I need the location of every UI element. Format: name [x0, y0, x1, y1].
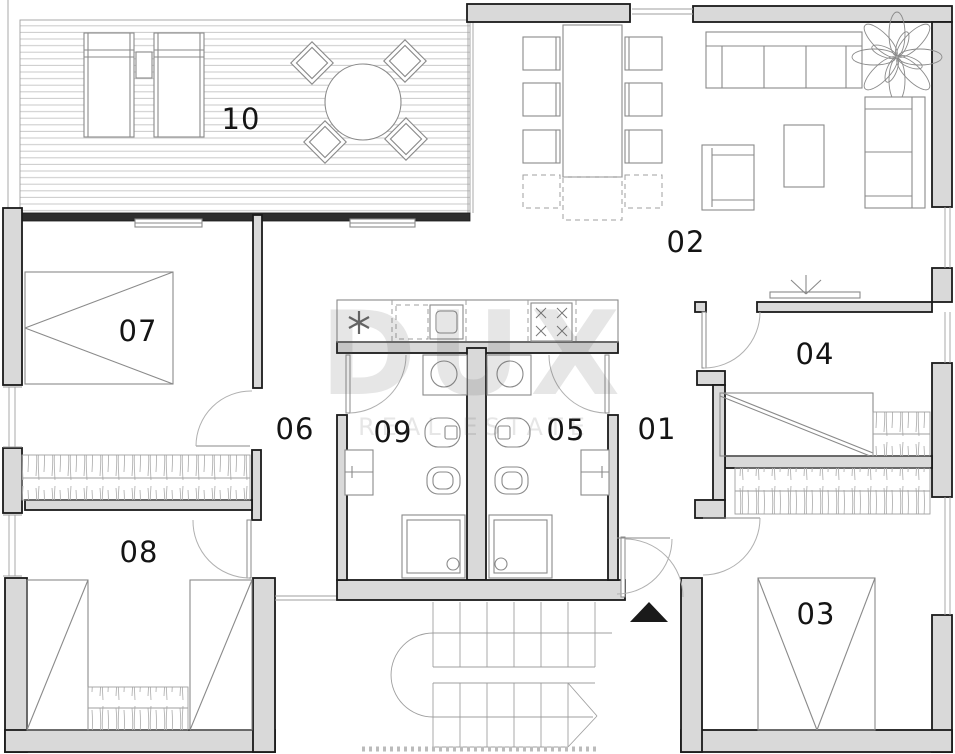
sliding-door-threshold [135, 219, 202, 227]
door [703, 518, 760, 575]
bedroom-04 [702, 312, 930, 456]
stair-direction-arrow [568, 683, 597, 716]
room-label-01: 01 [638, 412, 677, 446]
lounger-side-table [136, 52, 152, 78]
bidet [427, 467, 460, 494]
bedroom-07 [22, 272, 252, 500]
window [945, 207, 950, 268]
bathroom-09 [345, 355, 467, 578]
entrance-door [617, 537, 683, 597]
entrance-arrow-icon [630, 602, 668, 622]
room-label-06: 06 [276, 412, 315, 446]
window [945, 497, 950, 615]
stairwell-glazing [275, 596, 337, 600]
sliding-door-threshold [350, 219, 415, 227]
wardrobe [735, 468, 930, 514]
cooktop [531, 303, 572, 341]
room-label-08: 08 [120, 535, 159, 569]
plant [852, 12, 942, 102]
room-label-05: 05 [547, 413, 586, 447]
bed [720, 393, 873, 456]
dresser [88, 687, 188, 730]
bed [190, 580, 252, 730]
shower [402, 515, 465, 578]
room-label-04: 04 [796, 337, 835, 371]
door [702, 312, 760, 368]
window [945, 312, 950, 363]
kitchen-counter [337, 300, 618, 342]
door [346, 355, 406, 413]
sun-lounger [84, 33, 134, 137]
toilet [495, 418, 530, 447]
washing-machine [345, 450, 373, 495]
floorplan-drawing [0, 0, 955, 754]
window [3, 515, 22, 576]
sofa-small [865, 97, 925, 208]
room-label-09: 09 [374, 415, 413, 449]
window [632, 9, 693, 14]
dining-table [563, 25, 622, 220]
armchair [702, 145, 754, 210]
round-table [325, 64, 401, 140]
toilet [425, 418, 460, 447]
wardrobe [22, 455, 250, 500]
vanity-sink [423, 355, 467, 395]
bed [27, 580, 88, 730]
sofa-large [706, 32, 862, 88]
coffee-table [784, 125, 824, 187]
shower [489, 515, 552, 578]
room-label-02: 02 [667, 225, 706, 259]
dishwasher [396, 305, 428, 339]
door [193, 520, 251, 578]
sun-lounger [154, 33, 204, 137]
floorplan-page: DUX REAL ESTATE 10020706090501040803 [0, 0, 955, 754]
kitchen-sink [430, 305, 463, 339]
room-label-03: 03 [797, 597, 836, 631]
washing-machine [581, 450, 609, 495]
staircase [391, 602, 612, 747]
kitchen-star-icon [349, 311, 369, 334]
wardrobe [873, 412, 930, 456]
door [196, 391, 252, 446]
table-extension [563, 177, 622, 220]
room-label-10: 10 [222, 102, 261, 136]
vanity-sink [487, 355, 531, 395]
bidet [495, 467, 528, 494]
window [3, 387, 22, 447]
door [549, 355, 609, 413]
room-label-07: 07 [119, 314, 158, 348]
wall-tv [770, 275, 860, 298]
bathroom-05 [487, 355, 609, 578]
